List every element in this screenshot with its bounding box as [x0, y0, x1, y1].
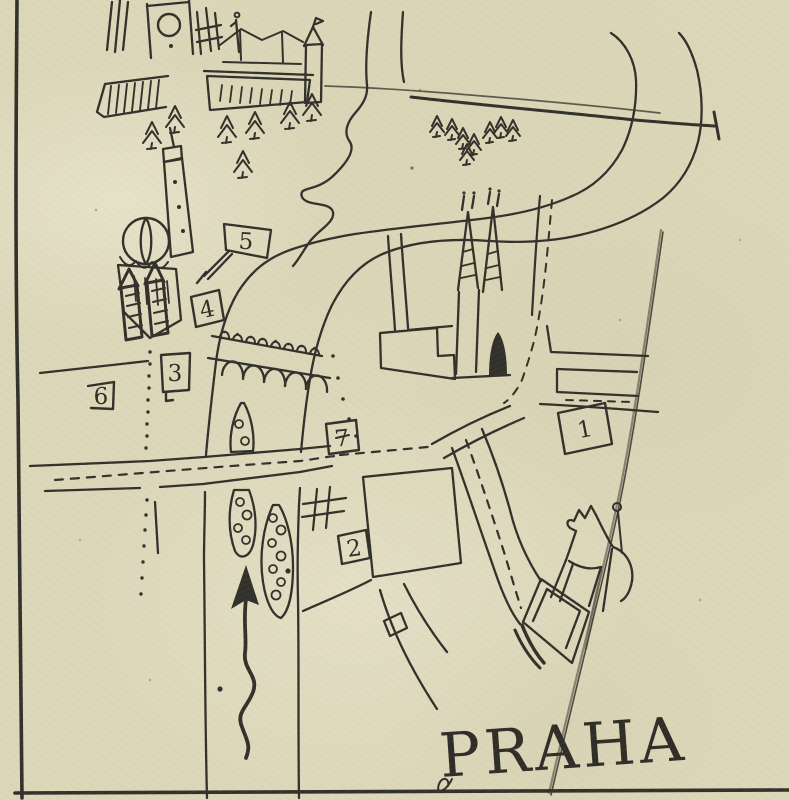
- map-page: 5 1 2 3 4 6 7 PRAHA: [0, 0, 789, 800]
- small-building: [384, 613, 407, 636]
- pine-tree-icon: [246, 112, 264, 139]
- route-dashes: [566, 400, 632, 402]
- old-town: [331, 187, 552, 437]
- street-line: [303, 580, 371, 611]
- left-rule: [16, 0, 22, 798]
- pine-tree-icon: [234, 151, 252, 178]
- castle-road-edge: [401, 12, 404, 82]
- pine-tree-icon: [445, 119, 459, 140]
- pine-tree-icon: [166, 106, 184, 133]
- junction-streets: [432, 326, 658, 458]
- street-line: [40, 361, 148, 373]
- pine-tree-icon: [218, 116, 236, 143]
- pine-trees-letna: [430, 116, 520, 165]
- marker-5-label: 5: [238, 229, 254, 256]
- new-town: [302, 468, 461, 709]
- square-border: [452, 448, 520, 624]
- pine-tree-icon: [281, 102, 299, 129]
- pine-tree-icon: [143, 122, 161, 149]
- embankment-line-thick: [411, 97, 715, 126]
- marker-1-label: 1: [575, 416, 594, 444]
- map-title: PRAHA: [437, 704, 690, 792]
- crossing-hash-icon: [302, 487, 346, 530]
- praha-title: PRAHA: [437, 704, 690, 792]
- bridge-tower-icon: [119, 263, 168, 340]
- page-border: [15, 0, 789, 798]
- wenceslas-square: [452, 429, 632, 668]
- island-with-trees-icon: [261, 505, 293, 618]
- river-east-bank-bend: [301, 33, 702, 452]
- river-east-bank: [298, 488, 300, 798]
- street-line: [432, 406, 510, 444]
- street-line: [557, 369, 638, 396]
- embankment-line-thin: [325, 86, 660, 113]
- castle-road-squiggle: [293, 12, 371, 266]
- street-line: [444, 418, 524, 458]
- pine-tree-icon: [467, 134, 481, 155]
- marker-2-label: 2: [345, 535, 364, 563]
- prague-map-drawing: 5 1 2 3 4 6 7 PRAHA: [0, 0, 789, 800]
- marker-6-label: 6: [94, 384, 109, 410]
- street-line: [380, 590, 437, 709]
- route-dashes: [55, 456, 335, 480]
- building-block: [363, 468, 461, 577]
- flag-marker-icon: 5: [197, 224, 271, 283]
- street-line: [155, 502, 158, 553]
- pine-tree-icon: [430, 116, 444, 137]
- street-line: [401, 234, 408, 328]
- bottom-rule: [15, 790, 789, 793]
- pine-tree-icon: [506, 120, 520, 141]
- flag-pole: [197, 251, 232, 283]
- river-west-bank: [204, 492, 207, 798]
- street-line: [404, 584, 447, 652]
- street-line: [547, 326, 648, 356]
- building-block: [380, 328, 455, 379]
- street-line: [532, 196, 540, 315]
- church-dome-icon: [123, 218, 169, 264]
- prague-castle-icon: [97, 0, 323, 117]
- marker-3-label: 3: [168, 361, 183, 387]
- pine-trees-castle: [143, 94, 321, 178]
- route-dashes: [504, 200, 552, 403]
- church-doorway: [489, 332, 507, 376]
- charles-bridge: [119, 263, 330, 392]
- marker-4-label: 4: [197, 296, 217, 324]
